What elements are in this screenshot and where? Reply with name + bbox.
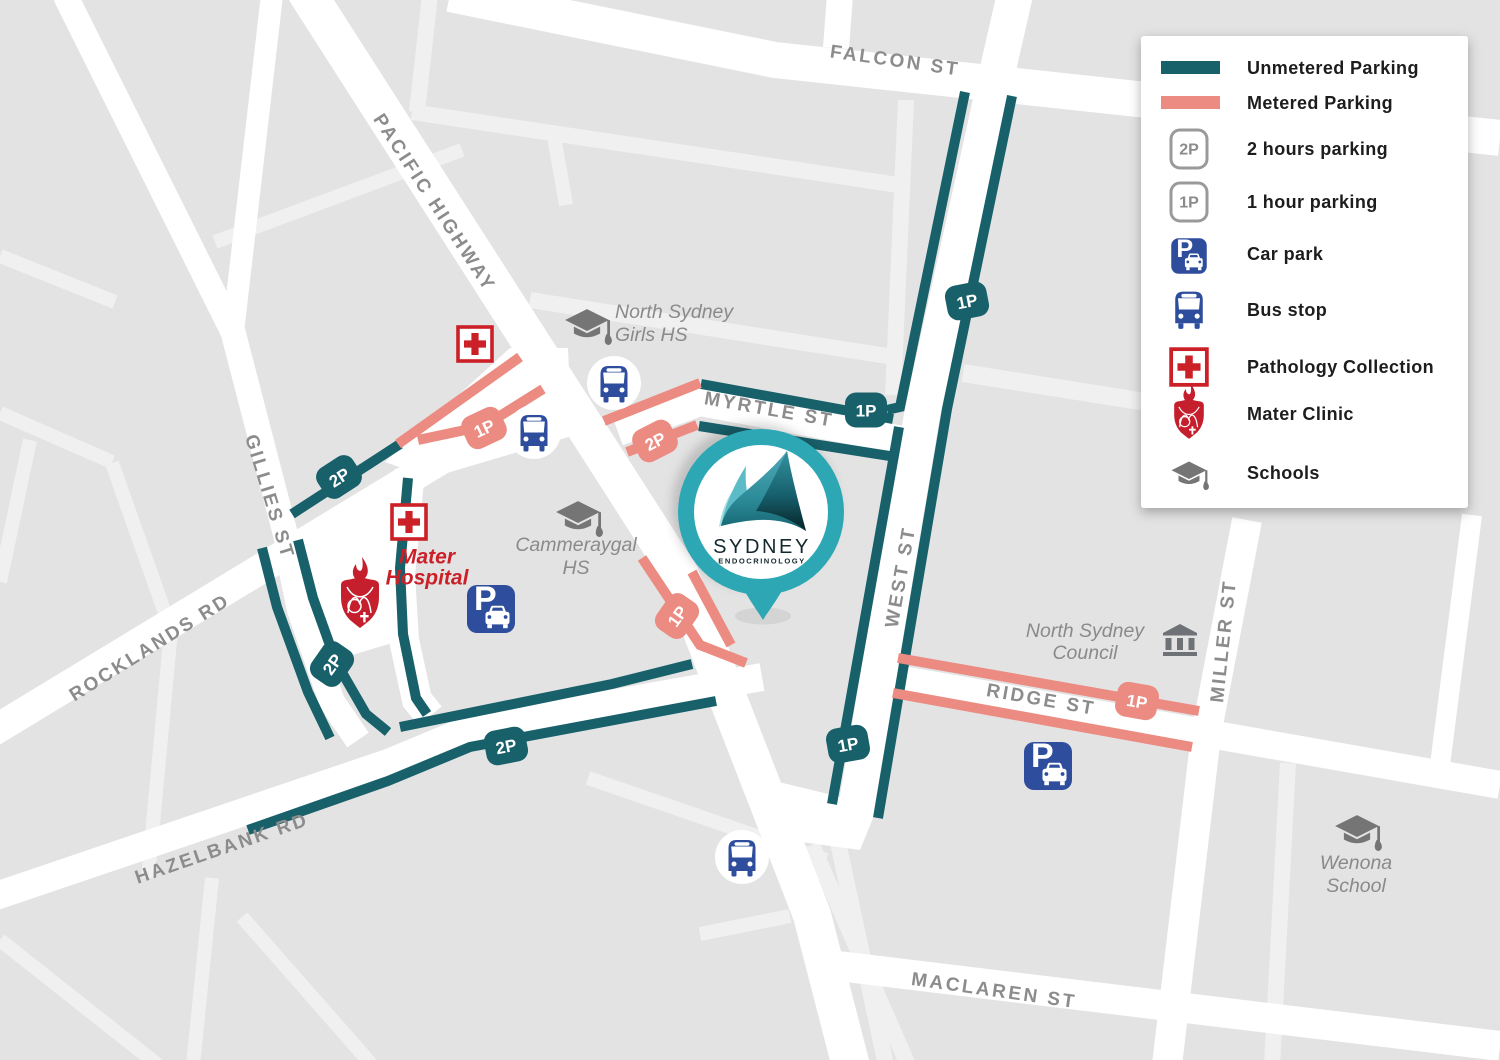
svg-text:1P: 1P <box>836 734 860 756</box>
svg-text:North Sydney: North Sydney <box>615 301 734 323</box>
svg-text:HS: HS <box>562 557 589 579</box>
svg-text:Car park: Car park <box>1247 244 1324 264</box>
svg-text:North Sydney: North Sydney <box>1026 620 1145 642</box>
svg-text:Pathology Collection: Pathology Collection <box>1247 357 1434 377</box>
svg-text:Council: Council <box>1052 642 1118 664</box>
svg-text:ENDOCRINOLOGY: ENDOCRINOLOGY <box>718 557 805 566</box>
svg-text:SYDNEY: SYDNEY <box>713 536 811 558</box>
svg-text:1P: 1P <box>955 291 979 314</box>
svg-text:2 hours parking: 2 hours parking <box>1247 139 1388 159</box>
svg-text:Bus stop: Bus stop <box>1247 300 1327 320</box>
svg-text:1P: 1P <box>1125 691 1149 713</box>
svg-text:Hospital: Hospital <box>386 567 470 590</box>
svg-text:School: School <box>1326 875 1386 897</box>
svg-text:Metered Parking: Metered Parking <box>1247 93 1393 113</box>
svg-text:Mater: Mater <box>399 546 457 569</box>
svg-text:2P: 2P <box>494 736 518 759</box>
svg-text:Mater Clinic: Mater Clinic <box>1247 404 1354 424</box>
svg-text:1P: 1P <box>856 402 877 421</box>
svg-text:1 hour parking: 1 hour parking <box>1247 192 1378 212</box>
svg-text:Schools: Schools <box>1247 463 1320 483</box>
svg-text:Cammeraygal: Cammeraygal <box>515 534 637 556</box>
svg-text:Unmetered Parking: Unmetered Parking <box>1247 58 1419 78</box>
svg-text:2P: 2P <box>1179 142 1199 159</box>
svg-text:1P: 1P <box>1179 195 1199 212</box>
svg-text:Girls HS: Girls HS <box>615 324 688 346</box>
svg-text:Wenona: Wenona <box>1320 852 1392 874</box>
